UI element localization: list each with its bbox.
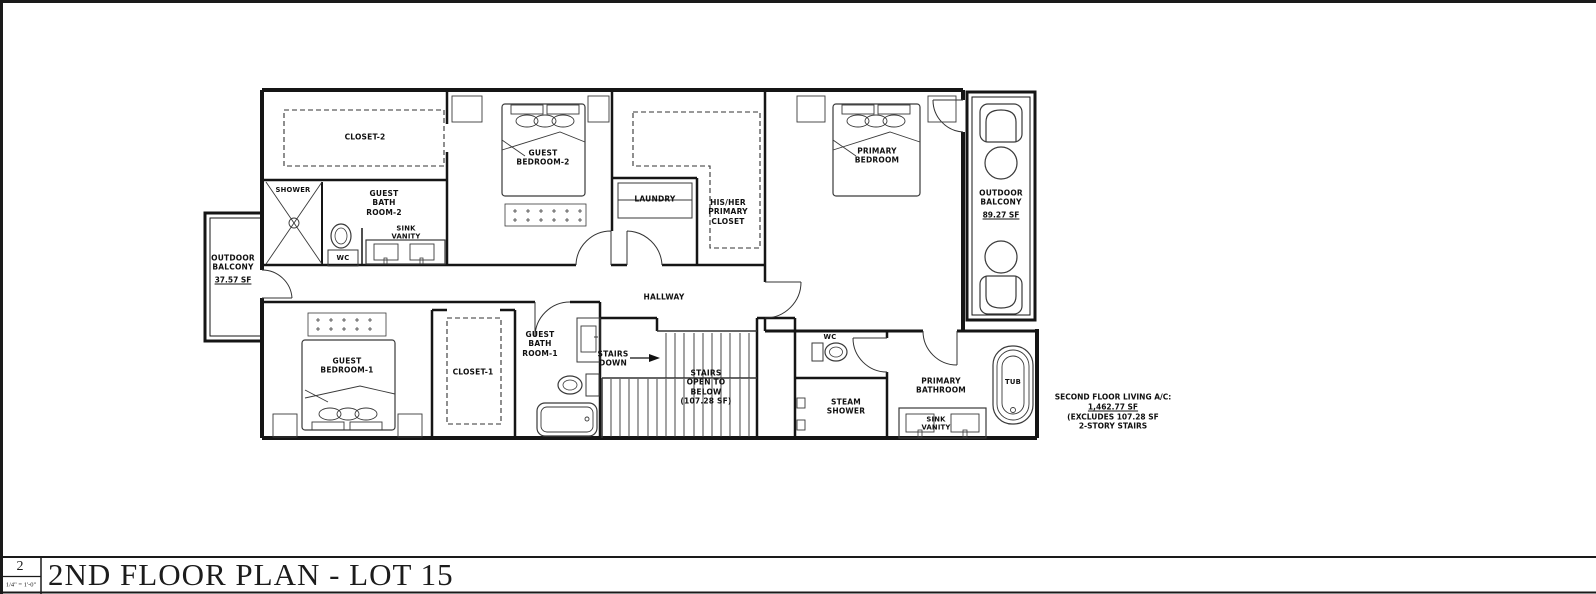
- rug-guest1: [308, 313, 386, 336]
- room-label-primary-bedroom: PRIMARY BEDROOM: [855, 147, 899, 166]
- room-label-wc: WC: [824, 333, 837, 341]
- toilet-wc: [812, 343, 847, 361]
- room-label-hallway: HALLWAY: [644, 292, 685, 301]
- rug-guest2: [505, 204, 586, 226]
- room-label-primary-bathroom: PRIMARY BATHROOM: [916, 377, 966, 396]
- room-label-closet-1: CLOSET-1: [453, 367, 494, 376]
- room-label-guest-bedroom-1: GUEST BEDROOM-1: [320, 357, 373, 376]
- note-line-1: SECOND FLOOR LIVING A/C:: [1055, 393, 1172, 403]
- sheet-scale: 1/4" = 1'-0": [6, 582, 36, 589]
- note-line-3: (EXCLUDES 107.28 SF: [1055, 412, 1172, 422]
- label-stairs-down: STAIRS DOWN: [598, 350, 629, 369]
- room-label-sink-vanity-2: SINK VANITY: [391, 225, 420, 242]
- area-label-balcony-right: 89.27 SF: [983, 211, 1020, 220]
- tub-bath1: [537, 403, 597, 436]
- vanity-bath2: [366, 240, 445, 264]
- floor-plan-sheet: CLOSET-2 SHOWER GUEST BATH ROOM-2 WC SIN…: [0, 0, 1596, 594]
- label-stairs-open-below: STAIRS OPEN TO BELOW (107.28 SF): [680, 368, 731, 406]
- toilet-bath1: [558, 374, 599, 396]
- room-label-sink-vanity-primary: SINK VANITY: [921, 416, 950, 433]
- room-label-wc-2: WC: [337, 254, 350, 262]
- area-label-balcony-left: 37.57 SF: [215, 276, 252, 285]
- sheet-number: 2: [17, 559, 24, 575]
- balcony-walls: [205, 92, 1035, 341]
- room-label-laundry: LAUNDRY: [634, 194, 675, 203]
- note-line-4: 2-STORY STAIRS: [1055, 422, 1172, 432]
- room-label-outdoor-balcony-left: OUTDOOR BALCONY: [211, 254, 255, 273]
- room-label-shower: SHOWER: [276, 186, 311, 194]
- floorplan-linework: [0, 0, 1596, 594]
- room-label-guest-bath-2: GUEST BATH ROOM-2: [366, 189, 402, 217]
- room-label-guest-bath-1: GUEST BATH ROOM-1: [522, 330, 558, 358]
- room-label-his-her-primary-closet: HIS/HER PRIMARY CLOSET: [708, 198, 748, 226]
- room-label-steam-shower: STEAM SHOWER: [827, 398, 865, 417]
- stairs-down-arrow: [630, 354, 660, 362]
- steam-shower-door: [797, 398, 805, 430]
- room-label-closet-2: CLOSET-2: [345, 132, 386, 141]
- bed-guest2: [452, 96, 609, 196]
- room-label-guest-bedroom-2: GUEST BEDROOM-2: [516, 149, 569, 168]
- page-title: 2ND FLOOR PLAN - LOT 15: [48, 557, 454, 593]
- living-area-note: SECOND FLOOR LIVING A/C: 1,462.77 SF (EX…: [1055, 393, 1172, 432]
- balcony-furniture: [980, 104, 1022, 314]
- note-line-2: 1,462.77 SF: [1055, 402, 1172, 412]
- bed-guest1: [273, 340, 422, 437]
- shower-pan: [266, 182, 322, 264]
- room-label-outdoor-balcony-right: OUTDOOR BALCONY: [979, 189, 1023, 208]
- label-tub: TUB: [1005, 378, 1021, 386]
